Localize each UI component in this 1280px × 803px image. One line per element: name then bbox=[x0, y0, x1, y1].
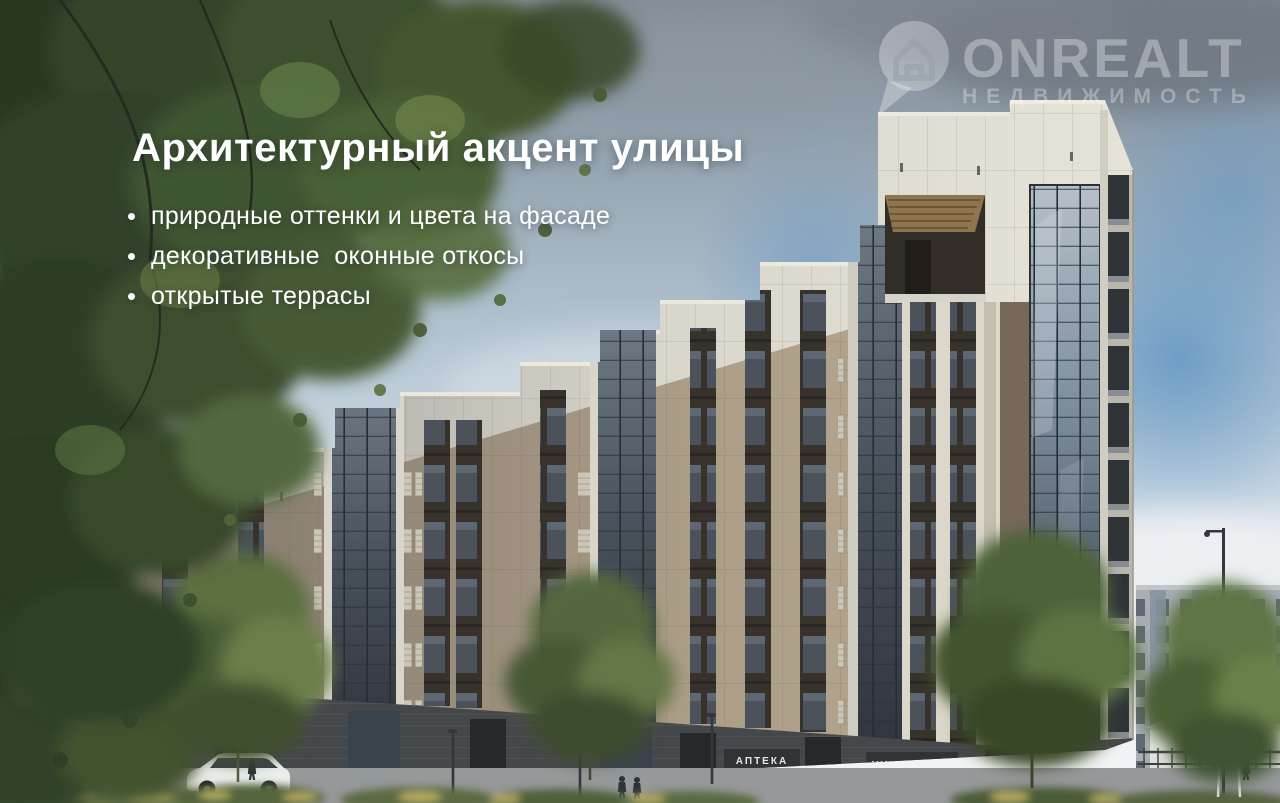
brand-words: ONREALT НЕДВИЖИМОСТЬ bbox=[962, 32, 1255, 108]
bullet-text: открытые террасы bbox=[151, 282, 371, 311]
house-pin-icon bbox=[876, 20, 950, 120]
slide: АПТЕКА УНИВЕРСАМ bbox=[0, 0, 1280, 803]
page-title: Архитектурный акцент улицы bbox=[132, 126, 744, 171]
svg-text:АПТЕКА: АПТЕКА bbox=[736, 756, 788, 767]
bullet-dot-icon bbox=[128, 293, 135, 300]
brand-tagline: НЕДВИЖИМОСТЬ bbox=[962, 86, 1255, 108]
bullet-dot-icon bbox=[128, 253, 135, 260]
list-item: открытые террасы bbox=[128, 282, 610, 311]
terrace-niche bbox=[885, 195, 985, 303]
list-item: природные оттенки и цвета на фасаде bbox=[128, 202, 610, 231]
bullet-dot-icon bbox=[128, 213, 135, 220]
list-item: декоративные оконные откосы bbox=[128, 242, 610, 271]
bullet-text: природные оттенки и цвета на фасаде bbox=[151, 202, 610, 231]
brand-name: ONREALT bbox=[962, 32, 1255, 84]
architectural-render: АПТЕКА УНИВЕРСАМ bbox=[0, 0, 1280, 803]
bullet-text: декоративные оконные откосы bbox=[151, 242, 524, 271]
brand-watermark: ONREALT НЕДВИЖИМОСТЬ bbox=[876, 20, 1255, 120]
bullet-list: природные оттенки и цвета на фасаде деко… bbox=[128, 202, 610, 322]
